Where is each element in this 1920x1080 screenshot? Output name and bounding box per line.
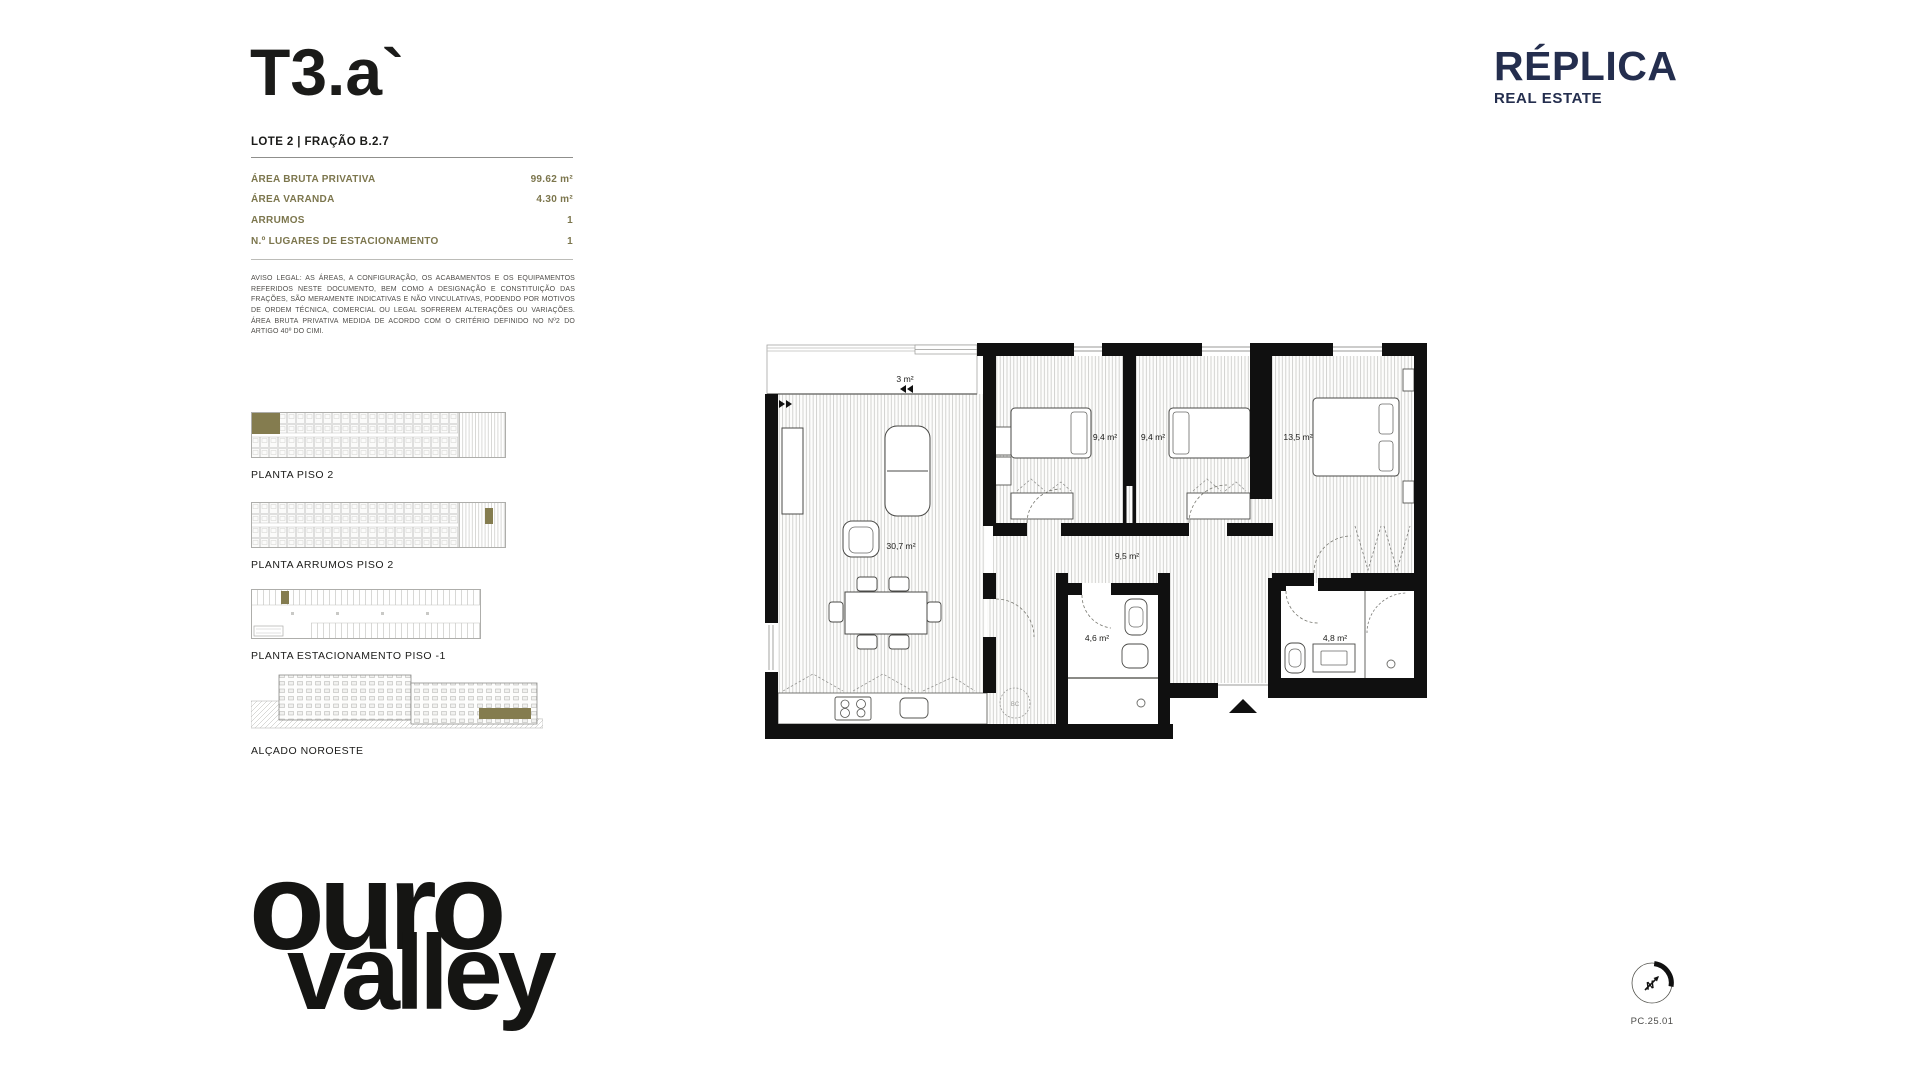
basin-1 [1122, 644, 1148, 668]
drawing-code: PC.25.01 [1604, 1016, 1700, 1027]
bc-label: BC [1011, 702, 1020, 708]
storage-plan-thumbnail [251, 502, 506, 548]
floorplan-sheet: T3.a` LOTE 2 | FRAÇÃO B.2.7 ÁREA BRUTA P… [0, 0, 1920, 1080]
spec-label: N.º LUGARES DE ESTACIONAMENTO [251, 236, 439, 247]
compass: N [1628, 959, 1676, 1012]
room-label-bathroom1: 4,6 m² [1085, 633, 1109, 643]
thumbnail-planta-piso-2: PLANTA PISO 2 [251, 412, 506, 481]
divider-line [251, 259, 573, 260]
brand-tagline: REAL ESTATE [1494, 90, 1677, 107]
unit-highlight [252, 413, 280, 434]
room-label-living: 30,7 m² [886, 541, 915, 551]
spec-value: 99.62 m² [531, 174, 573, 185]
room-label-bedroom3: 13,5 m² [1283, 432, 1312, 442]
sink [900, 698, 928, 718]
hob [835, 697, 871, 720]
thumbnail-planta-estacionamento: PLANTA ESTACIONAMENTO PISO -1 [251, 589, 481, 662]
room-label-bathroom2: 4,8 m² [1323, 633, 1347, 643]
brand-logo: RÉPLICA REAL ESTATE [1494, 46, 1677, 107]
dining-table [845, 592, 927, 634]
north-compass-icon: N [1628, 959, 1676, 1007]
thumbnail-alcado-noroeste: ALÇADO NOROESTE [251, 672, 543, 757]
spec-value: 1 [567, 236, 573, 247]
spec-row-area-bruta: ÁREA BRUTA PRIVATIVA 99.62 m² [251, 169, 573, 190]
parking-plan-thumbnail [251, 589, 481, 639]
main-floorplan: BC 3 m² 30,7 m² 9,4 m² 9,4 m² 13,5 m² 9,… [765, 341, 1427, 739]
room-label-balcony: 3 m² [896, 374, 913, 384]
thumbnail-label: PLANTA ESTACIONAMENTO PISO -1 [251, 650, 481, 662]
room-label-bedroom1: 9,4 m² [1093, 432, 1117, 442]
spec-row-arrumos: ARRUMOS 1 [251, 210, 573, 231]
storage-highlight [485, 508, 493, 524]
room-label-bedroom2: 9,4 m² [1141, 432, 1165, 442]
facade-highlight [479, 708, 531, 719]
room-label-hall: 9,5 m² [1115, 551, 1139, 561]
entrance-arrow [1229, 699, 1257, 713]
project-logo-line2: valley [287, 920, 552, 1026]
parking-spot-highlight [281, 591, 289, 604]
toilet-2 [1285, 643, 1305, 673]
elevation-thumbnail [251, 672, 543, 734]
spec-label: ÁREA BRUTA PRIVATIVA [251, 174, 376, 185]
thumbnail-label: PLANTA ARRUMOS PISO 2 [251, 559, 506, 571]
divider-line [251, 157, 573, 158]
brand-name: RÉPLICA [1494, 46, 1677, 87]
spec-row-estacionamento: N.º LUGARES DE ESTACIONAMENTO 1 [251, 231, 573, 252]
thumbnail-label: PLANTA PISO 2 [251, 469, 506, 481]
spec-label: ARRUMOS [251, 215, 305, 226]
page-title: T3.a` [250, 34, 404, 110]
toilet-1 [1125, 599, 1147, 635]
dresser-1 [1011, 493, 1073, 519]
floorplan-drawing: BC 3 m² 30,7 m² 9,4 m² 9,4 m² 13,5 m² 9,… [765, 341, 1427, 739]
spec-row-varanda: ÁREA VARANDA 4.30 m² [251, 190, 573, 211]
spec-table: ÁREA BRUTA PRIVATIVA 99.62 m² ÁREA VARAN… [251, 169, 573, 251]
building-plan-thumbnail [251, 412, 506, 458]
spec-value: 4.30 m² [536, 194, 573, 205]
lot-fraction-subtitle: LOTE 2 | FRAÇÃO B.2.7 [251, 136, 389, 148]
kitchen-counter [778, 693, 987, 724]
spec-value: 1 [567, 215, 573, 226]
spec-label: ÁREA VARANDA [251, 194, 335, 205]
dresser-2 [1187, 493, 1250, 519]
thumbnail-planta-arrumos: PLANTA ARRUMOS PISO 2 [251, 502, 506, 571]
thumbnail-label: ALÇADO NOROESTE [251, 745, 543, 757]
washer [1313, 644, 1355, 672]
legal-disclaimer: AVISO LEGAL: AS ÁREAS, A CONFIGURAÇÃO, O… [251, 274, 575, 338]
shower-drain-1 [1137, 699, 1145, 707]
shower-drain-2 [1387, 660, 1395, 668]
sideboard [782, 428, 803, 514]
